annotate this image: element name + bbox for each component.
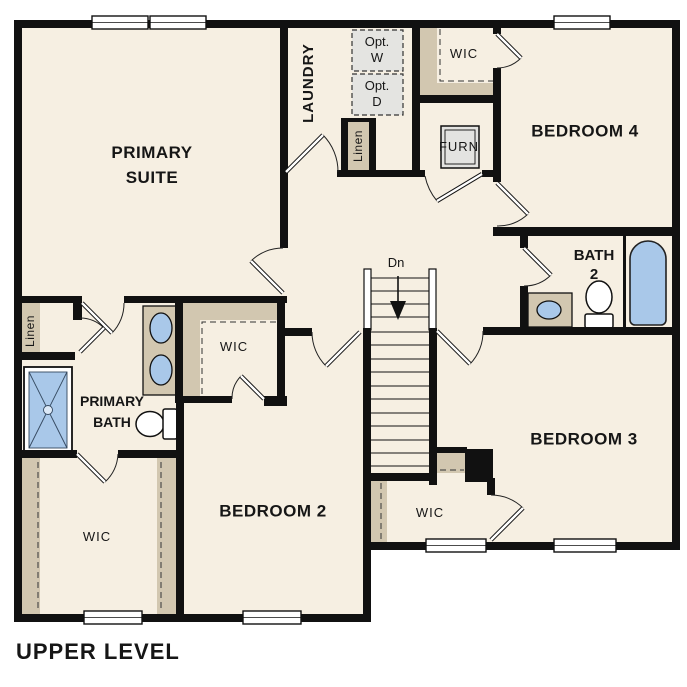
- floor-area: [17, 23, 677, 618]
- label-optional-washer: Opt. W: [365, 34, 390, 66]
- label-linen-left: Linen: [23, 315, 37, 347]
- toilet-bath2: [585, 281, 613, 328]
- shower: [24, 367, 72, 453]
- room-label-laundry: LAUNDRY: [300, 43, 318, 123]
- room-label-wic-bottom-mid: WIC: [416, 505, 444, 521]
- room-label-wic-bottom-left: WIC: [83, 529, 111, 545]
- floor-plan-drawing: [0, 0, 687, 687]
- room-label-bedroom4: BEDROOM 4: [531, 119, 638, 144]
- room-label-primary-bath: PRIMARY BATH: [80, 391, 144, 433]
- room-label-bedroom2: BEDROOM 2: [219, 499, 326, 524]
- bathtub: [630, 241, 666, 325]
- label-stairs-down: Dn: [388, 255, 405, 271]
- label-optional-dryer: Opt. D: [365, 78, 390, 110]
- room-label-primary-suite: PRIMARY SUITE: [111, 140, 192, 190]
- label-linen-top: Linen: [351, 130, 365, 162]
- floor-plan-page: PRIMARY SUITE LAUNDRY Opt. W Opt. D WIC …: [0, 0, 687, 687]
- room-label-wic-middle: WIC: [220, 339, 248, 355]
- room-label-bedroom3: BEDROOM 3: [530, 427, 637, 452]
- plan-caption: UPPER LEVEL: [16, 639, 180, 665]
- label-furnace: FURN: [439, 139, 479, 155]
- room-label-wic-top: WIC: [450, 46, 478, 62]
- room-label-bath2: BATH 2: [574, 246, 615, 284]
